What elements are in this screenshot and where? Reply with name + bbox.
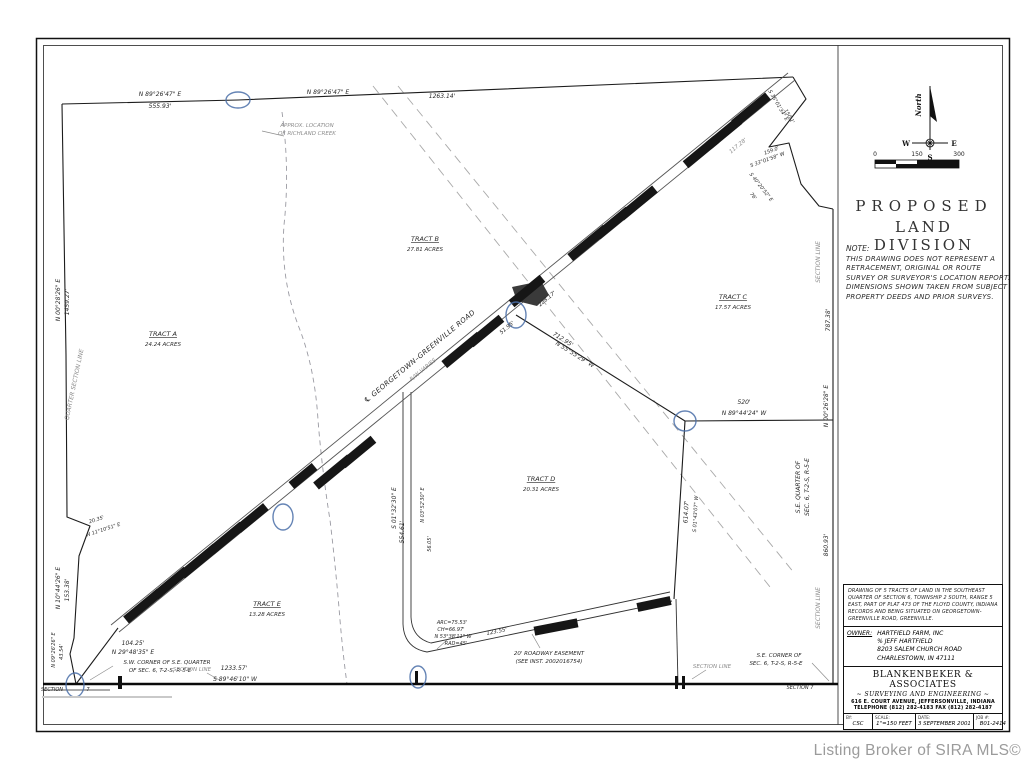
meta-date: DATE: 3 SEPTEMBER 2001 (915, 714, 973, 729)
survey-label: S.E. CORNER OF (757, 653, 803, 659)
section-line (43, 684, 838, 690)
by-value: CSC (846, 721, 870, 727)
survey-label: 104.25' (122, 640, 145, 647)
meta-job: JOB #: B01-2414 (973, 714, 1012, 729)
date-value: 3 SEPTEMBER 2001 (918, 721, 971, 727)
surveyor-section: BLANKENBEKER & ASSOCIATES ~ SURVEYING AN… (844, 666, 1002, 713)
survey-label: SECTION 7 (787, 685, 815, 691)
note-block: NOTE: THIS DRAWING DOES NOT REPRESENT A … (846, 244, 1012, 302)
survey-label: RAD=45' (445, 641, 468, 647)
scale-bar: 0 150 300 (873, 151, 965, 168)
illegible-fine-print (42, 696, 172, 698)
richland-creek-line (282, 112, 347, 684)
meta-scale: SCALE: 1"=150 FEET (872, 714, 915, 729)
survey-label: APPROX. LOCATION (279, 123, 334, 129)
tract-name-label: TRACT A (149, 330, 177, 338)
bearing-box (618, 186, 658, 221)
note-body: THIS DRAWING DOES NOT REPRESENT A RETRAC… (846, 255, 1012, 302)
owner-section: OWNER: HARTFIELD FARM, INC % JEFF HARTFI… (844, 626, 1002, 667)
owner-line: 8203 SALEM CHURCH ROAD (877, 646, 962, 654)
survey-label: N 89°26'47" E (139, 91, 182, 98)
tract-name-label: TRACT B (411, 235, 440, 243)
survey-label: 787.38' (825, 308, 832, 331)
by-label: BY: (846, 715, 870, 720)
scale-tick-0: 0 (873, 151, 877, 158)
tract-name-label: TRACT E (253, 600, 282, 608)
firm-name: BLANKENBEKER & ASSOCIATES (844, 670, 1002, 690)
firm-phone: TELEPHONE (812) 282-4183 FAX (812) 282-4… (844, 706, 1002, 711)
parcel-boundary (62, 77, 833, 684)
survey-label: ARC=75.53' (436, 620, 467, 626)
survey-label: S 01°32'30" E (391, 487, 398, 529)
survey-label: 56.05' (427, 536, 433, 552)
firm-subtitle: ~ SURVEYING AND ENGINEERING ~ (844, 691, 1002, 698)
title-block: DRAWING OF 5 TRACTS OF LAND IN THE SOUTH… (843, 584, 1003, 730)
tract-acres-label: 13.28 ACRES (249, 612, 285, 618)
survey-label: SECTION LINE (173, 667, 212, 673)
bearing-box (340, 436, 377, 468)
job-value: B01-2414 (976, 721, 1010, 727)
note-label: NOTE: (846, 244, 1012, 253)
survey-label: SECTION (41, 687, 63, 693)
firm-address: 616 E. COURT AVENUE, JEFFERSONVILLE, IND… (844, 700, 1002, 705)
job-label: JOB #: (976, 715, 1010, 720)
meta-by: BY: CSC (844, 714, 872, 729)
mls-watermark: Listing Broker of SIRA MLS© (814, 742, 1021, 760)
date-label: DATE: (918, 715, 971, 720)
tract-acres-label: 24.24 ACRES (145, 342, 181, 348)
tract-name-label: TRACT C (719, 293, 748, 301)
north-label: North (914, 93, 923, 117)
survey-label: 20' ROADWAY EASEMENT (514, 651, 585, 657)
compass-west-label: W (901, 139, 910, 148)
bearing-box (534, 618, 579, 635)
survey-label: N 03°52'30" E (420, 486, 426, 522)
tract-acres-label: 27.81 ACRES (407, 247, 443, 253)
survey-label: 20.35' (88, 515, 105, 526)
survey-label: N 53°38'11" W (434, 634, 472, 640)
plat-sheet: North W E S 0 150 300 N 89°26'47" E555.9… (0, 0, 1024, 768)
plat-title-line1: PROPOSED (844, 197, 1004, 215)
tract-name-label: TRACT D (527, 475, 556, 483)
survey-label: SECTION LINE (815, 241, 822, 283)
tract-acres-label: 20.31 ACRES (523, 487, 559, 493)
survey-label: 554.61' (399, 520, 406, 543)
owner-line: HARTFIELD FARM, INC (877, 630, 962, 638)
survey-label: N 29°48'35" E (112, 649, 155, 656)
survey-label: N 10°44'26" E (55, 567, 62, 610)
survey-label: N 00°28'26" E (55, 279, 62, 322)
survey-label: S 89°46'10" W (213, 676, 258, 683)
survey-label: N 89°26'47" E (307, 89, 350, 96)
survey-label: 76' (748, 191, 757, 201)
survey-label: QUARTER SECTION LINE (64, 348, 86, 421)
monument-ticks (118, 671, 685, 689)
survey-node-circle (273, 504, 293, 530)
owner-label: OWNER: (847, 630, 872, 664)
survey-label: 1459.27' (64, 288, 71, 315)
survey-label: N 09°26'26" E (51, 631, 57, 667)
survey-label: OF RICHLAND CREEK (278, 131, 336, 137)
scale-tick-300: 300 (953, 151, 965, 158)
survey-label: 520' (737, 399, 750, 406)
survey-label: CH=66.97' (437, 627, 464, 633)
survey-label: 860.93' (823, 533, 830, 556)
bearing-box (235, 503, 269, 533)
survey-label: S.E. QUARTER OF (795, 460, 802, 513)
scale-value: 1"=150 FEET (875, 721, 913, 727)
survey-label: S.W. CORNER OF S.E. QUARTER (124, 660, 211, 666)
survey-label: N 55°55'29" W (554, 340, 596, 370)
survey-label: 153.38' (64, 578, 71, 601)
survey-label: 614.07' (682, 500, 690, 523)
scale-label: SCALE: (875, 715, 913, 720)
survey-label: N 00°26'28" E (823, 385, 830, 428)
bearing-box (731, 93, 771, 128)
owner-line: CHARLESTOWN, IN 47111 (877, 655, 962, 663)
title-block-meta: BY: CSC SCALE: 1"=150 FEET DATE: 3 SEPTE… (844, 713, 1002, 729)
roadway-easement-lines (403, 392, 672, 652)
owner-address: HARTFIELD FARM, INC % JEFF HARTFIELD 820… (877, 630, 962, 664)
survey-label: N 89°44'24" W (722, 410, 768, 417)
tract-acres-label: 17.57 ACRES (715, 305, 751, 311)
survey-label: 117.28' (728, 137, 748, 155)
survey-label: 1233.57' (221, 665, 248, 672)
north-arrow: North W E S (901, 86, 957, 162)
drawing-description: DRAWING OF 5 TRACTS OF LAND IN THE SOUTH… (844, 585, 1002, 626)
survey-label: 555.93' (149, 103, 172, 110)
compass-east-label: E (951, 139, 956, 148)
survey-label: SECTION LINE (693, 664, 732, 670)
survey-label: (SEE INST. 2002016754) (516, 659, 583, 665)
survey-label: 43.54' (59, 644, 65, 660)
bearing-box (289, 463, 318, 489)
survey-label: 1263.14' (429, 93, 456, 100)
survey-label: SEC. 6, T-2-S, R-5-E (804, 458, 811, 516)
survey-label: SEC. 6, T-2-S, R-5-E (749, 661, 803, 667)
scale-tick-150: 150 (911, 151, 923, 158)
owner-line: % JEFF HARTFIELD (877, 638, 962, 646)
survey-label: SECTION LINE (815, 587, 822, 629)
survey-label: S 01°43'07" W (692, 494, 700, 532)
leader-lines (90, 131, 829, 681)
